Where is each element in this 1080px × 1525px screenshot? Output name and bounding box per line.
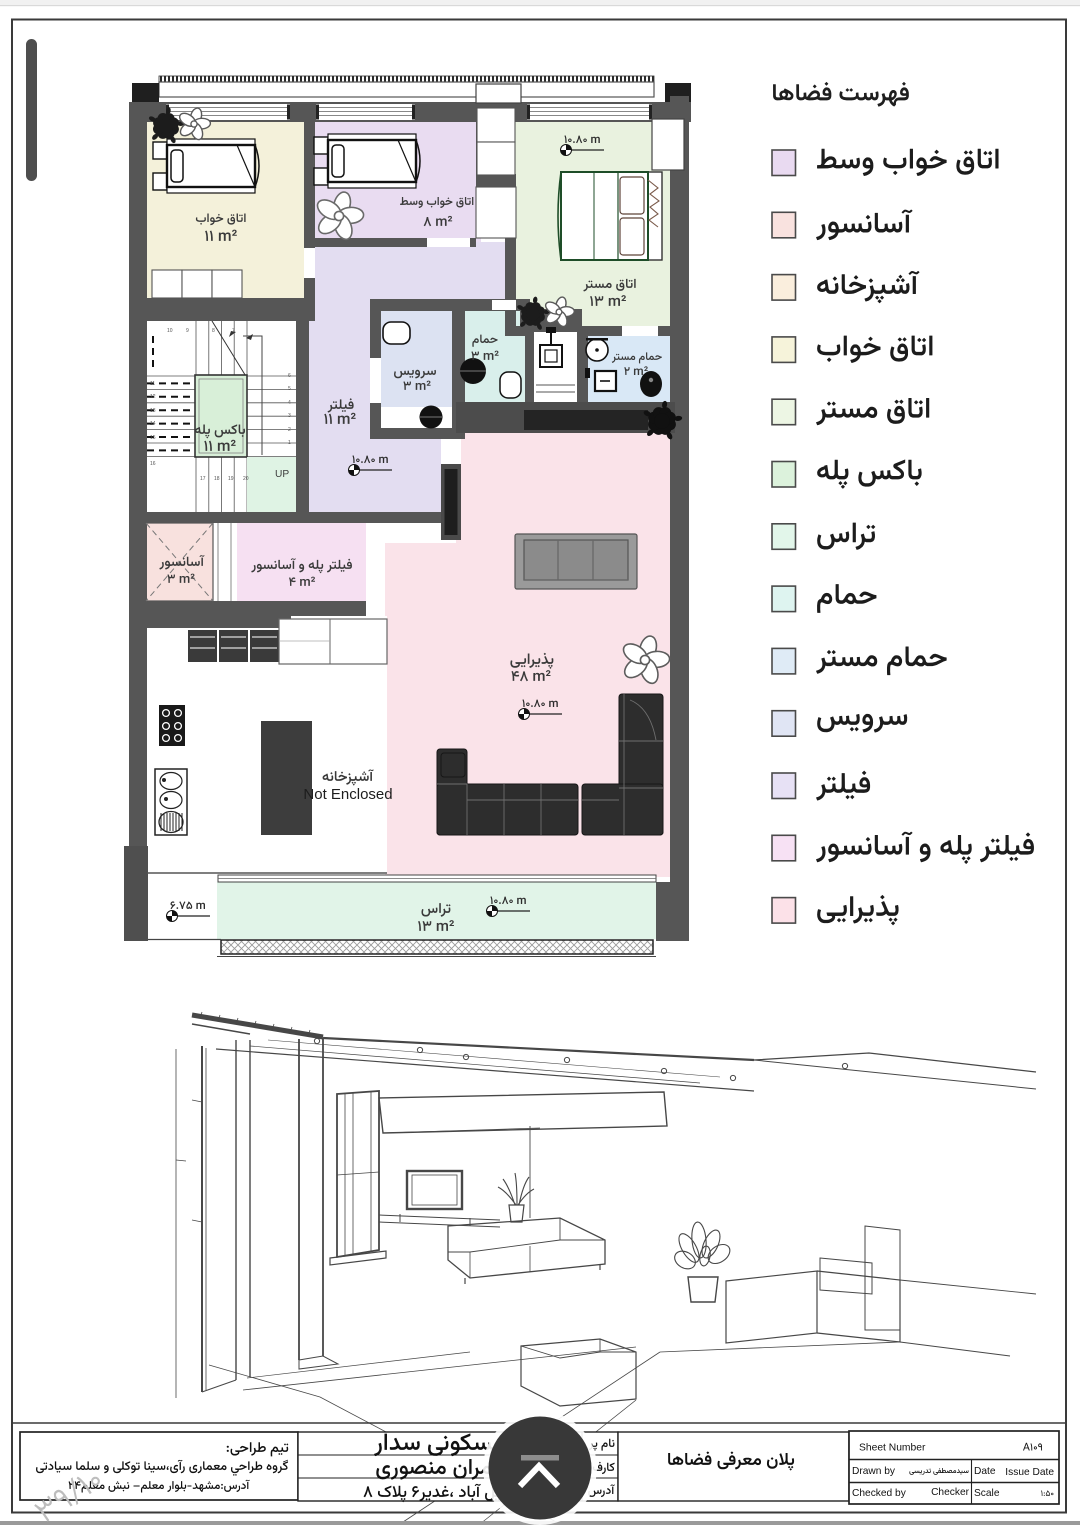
svg-text:14: 14: [150, 421, 156, 427]
svg-text:16: 16: [150, 461, 156, 467]
svg-text:7: 7: [232, 328, 235, 334]
svg-text:15: 15: [150, 435, 156, 441]
svg-text:5: 5: [288, 386, 291, 392]
svg-text:17: 17: [200, 476, 206, 482]
svg-text:Issue Date: Issue Date: [1005, 1467, 1054, 1478]
svg-text:18: 18: [214, 476, 220, 482]
svg-text:Checker: Checker: [931, 1487, 970, 1498]
svg-text:10: 10: [167, 328, 173, 334]
svg-text:19: 19: [228, 476, 234, 482]
svg-text:11: 11: [150, 381, 155, 387]
svg-text:9: 9: [186, 328, 189, 334]
svg-text:Not Enclosed: Not Enclosed: [303, 786, 392, 803]
svg-text:2: 2: [288, 427, 291, 433]
svg-text:Scale: Scale: [974, 1488, 1000, 1499]
svg-text:1: 1: [288, 440, 291, 446]
svg-text:13: 13: [150, 408, 156, 414]
svg-text:Drawn by: Drawn by: [852, 1466, 896, 1477]
svg-text:UP: UP: [275, 469, 289, 480]
svg-text:20: 20: [243, 476, 249, 482]
svg-text:3: 3: [288, 413, 291, 419]
svg-text:12: 12: [150, 394, 156, 400]
svg-text:Date: Date: [974, 1466, 996, 1477]
svg-text:8: 8: [212, 328, 215, 334]
svg-text:Checked by: Checked by: [852, 1488, 907, 1499]
svg-text:4: 4: [288, 400, 291, 406]
svg-text:6: 6: [288, 373, 291, 379]
svg-text:Sheet Number: Sheet Number: [859, 1443, 926, 1454]
